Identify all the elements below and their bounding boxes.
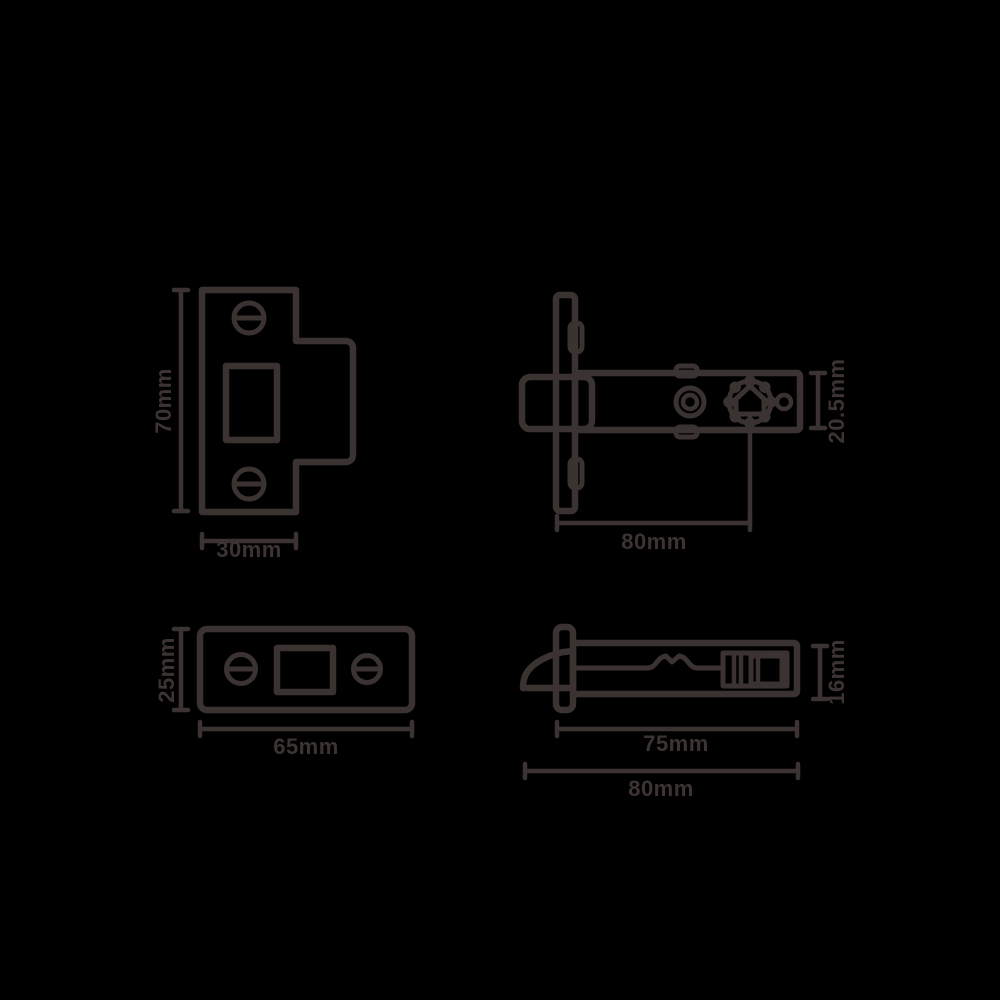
bolt-aperture xyxy=(277,648,333,692)
latch-bolt-cutout xyxy=(226,366,277,440)
strike-plate-front-view: 70mm 30mm xyxy=(151,290,353,562)
strike-width-label: 30mm xyxy=(216,537,282,562)
backset-label: 80mm xyxy=(621,529,687,554)
faceplate-front-view: 25mm 65mm xyxy=(154,629,412,759)
overall-length-label: 80mm xyxy=(628,776,694,801)
technical-drawing-canvas: 70mm 30mm 20.5mm xyxy=(0,0,1000,1000)
case-length-label: 75mm xyxy=(643,731,709,756)
spindle-hole xyxy=(736,386,764,414)
latch-bolt-side xyxy=(523,651,572,688)
spring-cap-ring-outer xyxy=(676,388,704,416)
case-height-label: 16mm xyxy=(824,639,849,705)
spring-cap-ring-inner xyxy=(683,395,697,409)
latch-side-view: 16mm 75mm 80mm xyxy=(523,627,849,801)
case-depth-label: 20.5mm xyxy=(824,359,849,444)
case-split-line xyxy=(573,656,723,668)
tubular-latch-dimension-diagram: 70mm 30mm 20.5mm xyxy=(0,0,1000,1000)
faceplate-width-label: 65mm xyxy=(273,734,339,759)
fixing-hole xyxy=(777,395,791,409)
follower-block xyxy=(751,656,782,684)
strike-height-label: 70mm xyxy=(151,368,176,434)
faceplate-height-label: 25mm xyxy=(154,637,179,703)
latch-top-view: 20.5mm 80mm xyxy=(522,295,849,554)
